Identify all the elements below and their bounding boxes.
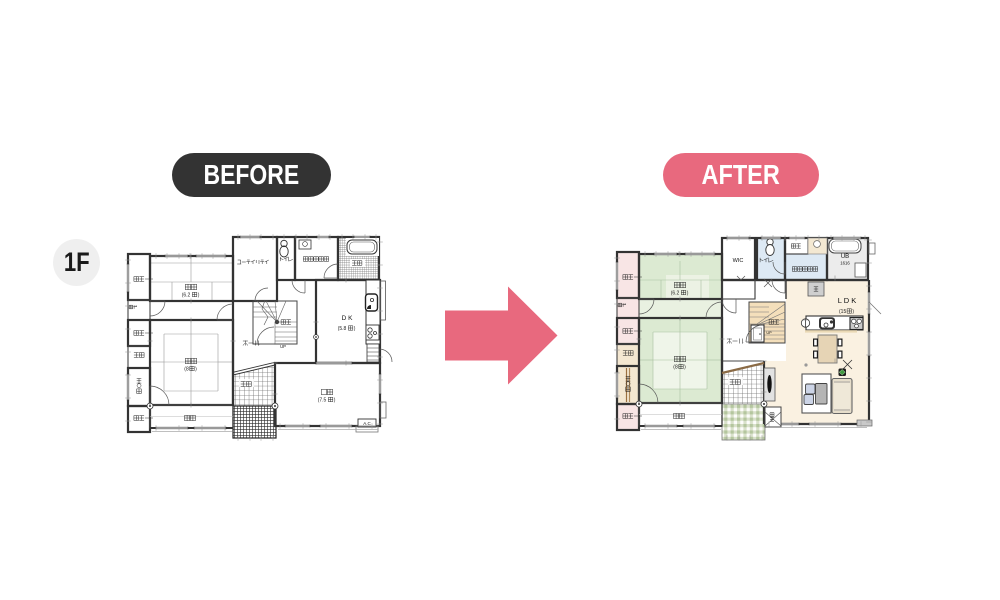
svg-text:A.C: A.C bbox=[363, 421, 371, 426]
svg-text:(8: (8 bbox=[184, 366, 189, 372]
svg-text:): ) bbox=[354, 326, 356, 332]
svg-text:(5.8: (5.8 bbox=[338, 326, 347, 332]
svg-text:(15: (15 bbox=[839, 309, 846, 315]
svg-text:WIC: WIC bbox=[733, 258, 744, 264]
svg-text:UP: UP bbox=[280, 344, 286, 349]
svg-text:D K: D K bbox=[342, 315, 354, 322]
svg-text:): ) bbox=[198, 292, 200, 298]
svg-text:(6.2: (6.2 bbox=[671, 290, 680, 296]
svg-text:L D K: L D K bbox=[838, 296, 856, 305]
svg-text:UP: UP bbox=[766, 331, 772, 335]
svg-text:(8: (8 bbox=[673, 364, 678, 370]
svg-text:(6.2: (6.2 bbox=[182, 292, 191, 298]
svg-text:): ) bbox=[334, 397, 336, 403]
svg-text:(7.5: (7.5 bbox=[318, 397, 327, 403]
svg-text:1616: 1616 bbox=[840, 261, 850, 266]
svg-text:UB: UB bbox=[841, 254, 849, 260]
svg-text:): ) bbox=[195, 366, 197, 372]
